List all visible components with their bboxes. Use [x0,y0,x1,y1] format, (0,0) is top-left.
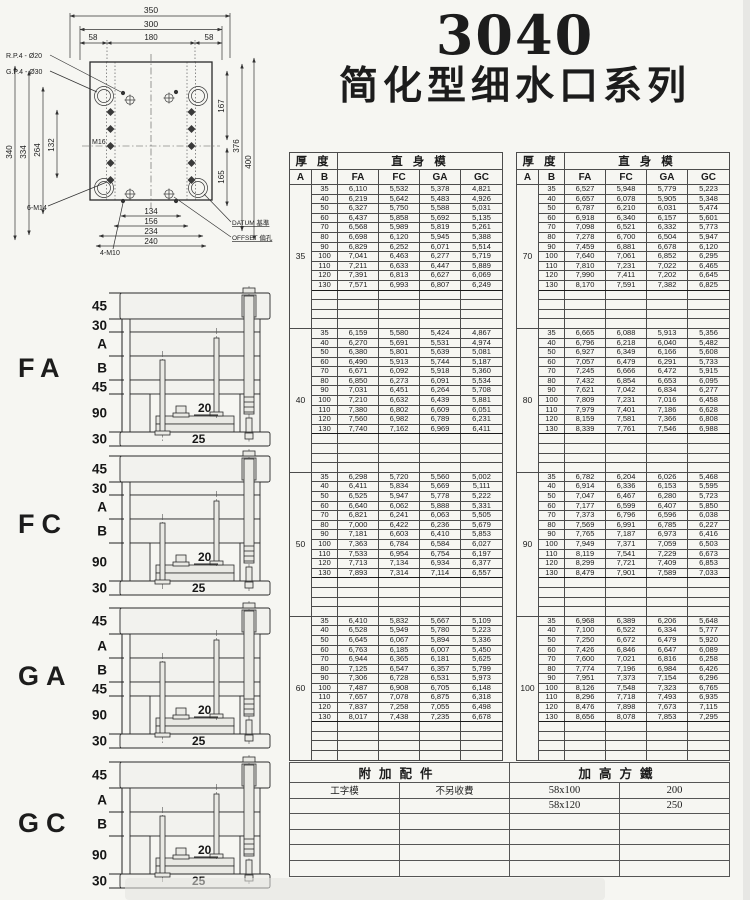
svg-text:340: 340 [5,145,14,159]
table-row: 1207,7137,1346,9346,377 [290,559,503,569]
table-cell: 7,366 [647,415,688,425]
table-cell: 6,241 [379,511,420,521]
table-cell: 8,119 [565,549,606,559]
table-cell: 5,949 [379,626,420,636]
table-cell: 7,569 [565,520,606,530]
a-thickness-cell: 70 [517,185,539,329]
a-thickness-cell: 100 [517,616,539,760]
table-cell: 6,407 [647,501,688,511]
mold-section-FA: 4530AB4590302025 [76,283,280,458]
empty-cell [606,722,647,732]
svg-text:30: 30 [92,481,107,496]
empty-cell [461,309,503,319]
empty-cell [379,741,420,751]
empty-cell [688,722,730,732]
empty-cell [647,607,688,617]
table-cell: 7,901 [606,568,647,578]
accessory-cell [620,829,730,845]
table-row: 607,1776,5996,4075,850 [517,501,730,511]
table-cell: 6,332 [647,223,688,233]
accessory-table: 附加配件加高方鐵工字模不另收費58x10020058x120250 [289,762,730,877]
empty-row [290,578,503,588]
price-table: 厚 度直 身 模ABFAFCGAGC70356,5275,9485,7795,2… [516,152,730,761]
table-cell: 7,181 [338,530,379,540]
table-cell: 7,211 [338,261,379,271]
table-row: 807,5696,9916,7856,227 [517,520,730,530]
table-cell: 80 [539,664,565,674]
empty-cell [379,587,420,597]
empty-cell [606,463,647,473]
empty-row [517,751,730,761]
table-cell: 7,021 [606,655,647,665]
table-header-row: 厚 度直 身 模 [290,153,503,170]
table-cell: 5,723 [688,492,730,502]
table-cell: 6,504 [647,232,688,242]
scan-smudge [125,878,605,900]
table-cell: 7,546 [647,424,688,434]
table-cell: 100 [539,539,565,549]
table-row: 706,9446,3656,1815,625 [290,655,503,665]
svg-text:45: 45 [92,299,108,314]
table-cell: 7,059 [647,539,688,549]
table-cell: 100 [312,539,338,549]
dim-right: 167 165 376 400 [217,58,254,240]
table-row: 1107,8107,2317,0226,465 [517,261,730,271]
empty-cell [647,300,688,310]
empty-row [290,434,503,444]
table-row: 1107,6577,0786,8756,318 [290,693,503,703]
empty-cell [420,722,461,732]
table-cell: 7,250 [565,635,606,645]
header-raised-block: 加高方鐵 [510,763,730,783]
empty-cell [565,319,606,329]
table-cell: 5,918 [420,367,461,377]
table-cell: 110 [539,549,565,559]
table-row: 607,4266,8466,6476,089 [517,645,730,655]
table-cell: 5,834 [379,482,420,492]
table-cell: 6,236 [420,520,461,530]
accessory-cell [290,814,400,830]
accessory-cell [290,860,400,876]
empty-cell [647,463,688,473]
svg-text:134: 134 [144,207,158,216]
table-cell: 6,411 [461,424,503,434]
svg-text:30: 30 [92,874,107,889]
table-cell: 110 [539,405,565,415]
table-cell: 5,348 [688,194,730,204]
table-cell: 6,647 [647,645,688,655]
table-cell: 6,834 [647,386,688,396]
table-cell: 80 [312,520,338,530]
table-cell: 7,600 [565,655,606,665]
table-cell: 6,210 [606,204,647,214]
table-cell: 4,926 [461,194,503,204]
table-cell: 60 [312,501,338,511]
table-cell: 6,596 [647,511,688,521]
empty-cell [539,453,565,463]
table-cell: 6,914 [565,482,606,492]
table-cell: 7,373 [565,511,606,521]
table-cell: 7,533 [338,549,379,559]
table-cell: 6,927 [565,348,606,358]
empty-cell [379,578,420,588]
table-cell: 7,853 [647,712,688,722]
table-cell: 7,426 [565,645,606,655]
empty-cell [379,290,420,300]
table-cell: 80 [539,520,565,530]
table-cell: 7,078 [379,693,420,703]
empty-cell [338,597,379,607]
empty-cell [565,453,606,463]
empty-cell [312,597,338,607]
table-cell: 6,678 [461,712,503,722]
table-row: 606,4375,8585,6925,135 [290,213,503,223]
empty-cell [312,741,338,751]
table-cell: 7,314 [379,568,420,578]
accessory-cell: 250 [620,798,730,814]
table-cell: 70 [539,655,565,665]
empty-cell [379,463,420,473]
empty-cell [539,587,565,597]
empty-cell [539,309,565,319]
table-cell: 80 [312,376,338,386]
table-cell: 7,295 [688,712,730,722]
table-cell: 100 [539,396,565,406]
accessory-row [290,860,730,876]
table-cell: 6,159 [338,328,379,338]
table-cell: 6,252 [379,242,420,252]
accessory-row: 58x120250 [290,798,730,814]
table-row: 1308,1707,5917,3826,825 [517,280,730,290]
empty-row [517,319,730,329]
table-cell: 5,719 [461,252,503,262]
table-cell: 7,258 [379,703,420,713]
accessory-cell [510,845,620,861]
table-cell: 7,196 [606,664,647,674]
table-row: 707,6007,0216,8166,258 [517,655,730,665]
table-cell: 5,514 [461,242,503,252]
table-cell: 5,799 [461,664,503,674]
table-row: 506,3275,7505,5885,031 [290,204,503,214]
table-cell: 6,982 [379,415,420,425]
empty-cell [539,290,565,300]
table-cell: 6,825 [688,280,730,290]
table-cell: 7,621 [565,386,606,396]
svg-text:20: 20 [198,703,212,717]
table-cell: 6,671 [338,367,379,377]
table-cell: 60 [539,501,565,511]
table-cell: 40 [312,626,338,636]
table-cell: 7,306 [338,674,379,684]
table-cell: 6,181 [420,655,461,665]
plate-drawing: 350 300 58 180 58 340 334 264 132 [0,0,288,262]
empty-cell [338,722,379,732]
table-cell: 5,560 [420,472,461,482]
table-cell: 6,280 [647,492,688,502]
table-cell: 6,258 [688,655,730,665]
table-cell: 7,432 [565,376,606,386]
mold-section-fa: FA4530AB4590302025 [4,283,276,458]
empty-cell [565,587,606,597]
empty-cell [606,300,647,310]
table-cell: 5,639 [420,348,461,358]
table-cell: 6,437 [338,213,379,223]
table-cell: 7,371 [606,539,647,549]
table-cell: 5,223 [688,185,730,195]
table-cell: 6,110 [338,185,379,195]
table-cell: 70 [312,655,338,665]
svg-text:DATUM 基準: DATUM 基準 [232,218,270,227]
mold-section-fc: FC4530AB90302025 [4,446,276,607]
svg-text:264: 264 [33,143,42,157]
table-cell: 5,388 [461,232,503,242]
table-header-row: 厚 度直 身 模 [517,153,730,170]
table-cell: 6,270 [338,338,379,348]
empty-cell [461,597,503,607]
empty-cell [606,597,647,607]
empty-cell [606,731,647,741]
table-cell: 6,599 [606,501,647,511]
table-row: 907,1816,6036,4105,853 [290,530,503,540]
table-cell: 5,778 [420,492,461,502]
table-cell: 6,357 [420,664,461,674]
table-row: 807,4326,8546,6536,095 [517,376,730,386]
svg-text:240: 240 [144,237,158,246]
table-cell: 6,277 [688,386,730,396]
table-row: 907,6217,0426,8346,277 [517,386,730,396]
table-cell: 6,705 [420,683,461,693]
svg-text:90: 90 [92,555,107,570]
table-cell: 40 [539,482,565,492]
svg-text:A: A [97,639,107,654]
table-cell: 50 [312,204,338,214]
table-cell: 5,625 [461,655,503,665]
table-cell: 6,291 [647,357,688,367]
table-cell: 7,380 [338,405,379,415]
table-row: 506,7876,2106,0315,474 [517,204,730,214]
table-cell: 6,627 [420,271,461,281]
table-cell: 6,853 [688,559,730,569]
accessory-cell [510,829,620,845]
table-cell: 35 [539,472,565,482]
table-cell: 5,850 [688,501,730,511]
empty-cell [539,434,565,444]
table-row: 1308,6568,0787,8537,295 [517,712,730,722]
empty-cell [647,578,688,588]
table-cell: 7,231 [606,261,647,271]
table-cell: 130 [312,568,338,578]
accessory-table-mount: 附加配件加高方鐵工字模不另收費58x10020058x120250 [289,762,730,877]
table-cell: 7,229 [647,549,688,559]
table-cell: 90 [539,242,565,252]
empty-cell [606,741,647,751]
col-header-FA: FA [338,170,379,185]
table-row: 1107,5336,9546,7546,197 [290,549,503,559]
table-cell: 6,528 [338,626,379,636]
table-cell: 6,782 [565,472,606,482]
table-row: 1208,4767,8987,6737,115 [517,703,730,713]
table-cell: 6,458 [688,396,730,406]
empty-cell [312,309,338,319]
table-cell: 120 [539,271,565,281]
table-cell: 5,187 [461,357,503,367]
table-cell: 6,789 [420,415,461,425]
table-cell: 50 [539,204,565,214]
empty-cell [338,309,379,319]
table-cell: 6,521 [606,223,647,233]
table-cell: 6,525 [338,492,379,502]
table-row: 906,8296,2526,0715,514 [290,242,503,252]
table-cell: 5,947 [688,232,730,242]
table-cell: 6,829 [338,242,379,252]
table-cell: 7,114 [420,568,461,578]
empty-row [290,290,503,300]
empty-cell [539,722,565,732]
table-cell: 6,846 [606,645,647,655]
accessory-row [290,814,730,830]
table-cell: 5,135 [461,213,503,223]
col-header-A: A [517,170,539,185]
empty-cell [379,597,420,607]
accessory-cell: 200 [620,783,730,799]
table-cell: 60 [312,645,338,655]
table-cell: 6,527 [565,185,606,195]
table-cell: 8,078 [606,712,647,722]
empty-row [517,444,730,454]
table-row: 806,8506,2736,0915,534 [290,376,503,386]
table-row: 1007,0416,4636,2775,719 [290,252,503,262]
header-thickness: 厚 度 [517,153,565,170]
col-header-A: A [290,170,312,185]
svg-text:25: 25 [192,734,206,748]
table-cell: 6,763 [338,645,379,655]
empty-cell [539,741,565,751]
table-cell: 5,881 [461,396,503,406]
table-row: 1007,9497,3717,0596,503 [517,539,730,549]
table-cell: 6,640 [338,501,379,511]
svg-text:334: 334 [19,145,28,159]
table-cell: 7,493 [647,693,688,703]
table-cell: 6,380 [338,348,379,358]
svg-text:B: B [97,361,107,376]
table-cell: 8,479 [565,568,606,578]
table-row: 1107,9797,4017,1866,628 [517,405,730,415]
col-header-B: B [539,170,565,185]
table-cell: 6,969 [420,424,461,434]
svg-text:25: 25 [192,581,206,595]
table-cell: 7,022 [647,261,688,271]
table-cell: 6,088 [606,328,647,338]
empty-cell [688,453,730,463]
table-cell: 6,531 [420,674,461,684]
table-cell: 90 [539,530,565,540]
header-extra-parts: 附加配件 [290,763,510,783]
table-cell: 5,642 [379,194,420,204]
table-cell: 6,120 [379,232,420,242]
table-cell: 35 [312,472,338,482]
table-cell: 7,713 [338,559,379,569]
empty-cell [461,434,503,444]
empty-cell [565,290,606,300]
accessory-cell: 工字模 [290,783,400,799]
table-cell: 6,479 [647,635,688,645]
table-cell: 90 [539,674,565,684]
table-cell: 50 [312,635,338,645]
table-row: 1208,1597,5817,3666,808 [517,415,730,425]
table-cell: 6,157 [647,213,688,223]
empty-cell [647,444,688,454]
empty-cell [647,587,688,597]
table-cell: 6,069 [461,271,503,281]
table-cell: 6,264 [420,386,461,396]
table-cell: 6,389 [606,616,647,626]
empty-row [290,607,503,617]
table-cell: 6,787 [565,204,606,214]
table-cell: 6,700 [606,232,647,242]
section-label-ga: GA [18,661,73,692]
table-cell: 50 [539,492,565,502]
svg-text:A: A [97,337,107,352]
svg-text:30: 30 [92,432,107,447]
table-cell: 100 [312,396,338,406]
title-block: 3040 简化型细水口系列 [285,6,745,108]
table-cell: 6,603 [379,530,420,540]
table-cell: 5,777 [688,626,730,636]
table-cell: 120 [312,703,338,713]
table-cell: 6,465 [688,261,730,271]
empty-cell [461,290,503,300]
empty-cell [338,434,379,444]
table-row: 507,2506,6726,4795,920 [517,635,730,645]
table-cell: 40 [312,338,338,348]
table-cell: 6,334 [647,626,688,636]
table-cell: 130 [312,712,338,722]
table-cell: 7,154 [647,674,688,684]
table-row: 100356,9686,3896,2065,648 [517,616,730,626]
table-row: 1007,2106,6326,4395,881 [290,396,503,406]
empty-row [517,607,730,617]
empty-cell [565,309,606,319]
table-cell: 8,476 [565,703,606,713]
a-thickness-cell: 50 [290,472,312,616]
mold-section-GA: 45AB4590302025 [76,598,280,760]
empty-row [290,444,503,454]
table-cell: 6,227 [688,520,730,530]
table-cell: 6,984 [647,664,688,674]
table-cell: 6,148 [461,683,503,693]
table-cell: 110 [312,549,338,559]
a-thickness-cell: 90 [517,472,539,616]
table-cell: 130 [312,280,338,290]
accessory-cell [400,798,510,814]
empty-row [290,319,503,329]
svg-text:4-M10: 4-M10 [100,250,120,257]
accessory-cell [400,814,510,830]
table-cell: 6,416 [688,530,730,540]
empty-cell [312,290,338,300]
table-cell: 7,373 [606,674,647,684]
price-table-left-mount: 厚 度直 身 模ABFAFCGAGC35356,1105,5325,3784,8… [289,152,503,761]
table-cell: 6,206 [647,616,688,626]
svg-text:376: 376 [232,139,241,153]
table-cell: 6,318 [461,693,503,703]
table-cell: 6,078 [606,194,647,204]
table-cell: 6,991 [606,520,647,530]
table-cell: 5,531 [420,338,461,348]
table-cell: 5,853 [461,530,503,540]
accessory-cell [510,860,620,876]
col-header-GC: GC [688,170,730,185]
